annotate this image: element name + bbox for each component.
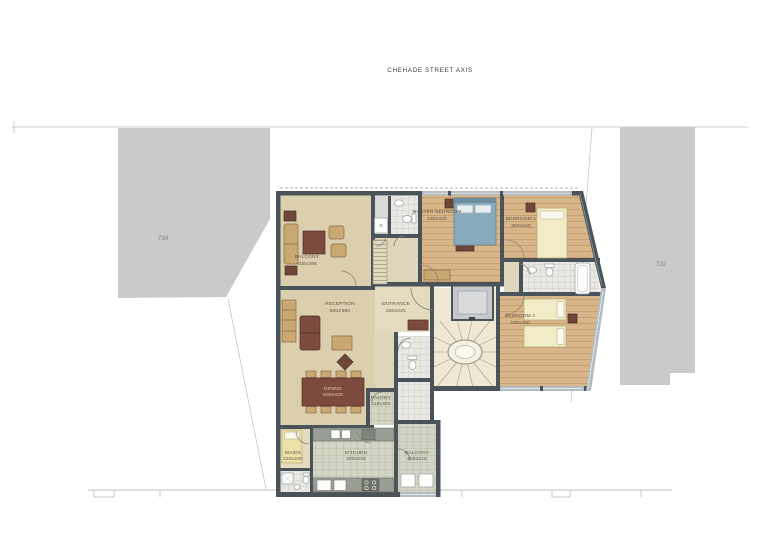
- stove: [362, 479, 379, 491]
- elevator-door-mark: [469, 317, 475, 320]
- kitchen-counter-top: [313, 428, 394, 441]
- toilet: [409, 361, 416, 370]
- sink: [402, 342, 411, 348]
- room-dims-bedroom1: 360x340: [511, 223, 531, 229]
- bedroom-hall-floor: [504, 262, 519, 292]
- boundary-marker: [94, 490, 114, 497]
- elevator-cab: [458, 291, 487, 314]
- neighbor-building-732: [620, 127, 695, 385]
- shower-pan: [375, 218, 388, 233]
- stairwell-inner: [455, 346, 475, 359]
- room-label-bedroom1: BEDROOM 1: [506, 216, 537, 222]
- toilet: [546, 268, 553, 276]
- room-dims-dining: 500x400: [323, 392, 343, 398]
- toilet: [303, 476, 309, 484]
- sink: [395, 200, 404, 206]
- room-dims-master-bedroom: 435x340: [427, 216, 447, 222]
- kitchen-sink: [331, 430, 340, 439]
- entrance-console: [408, 320, 428, 330]
- neighbor-building-734: [118, 128, 270, 298]
- room-dims-maids: 220x240: [283, 456, 303, 462]
- room-label-reception: RECEPTION: [325, 301, 355, 307]
- coffee-table: [332, 336, 352, 350]
- room-label-maids: MAIDS: [285, 450, 301, 456]
- room-label-master-bedroom: MASTER BEDROOM: [413, 209, 462, 215]
- room-dims-balcony-bottom: 400x210: [407, 456, 427, 462]
- appliance: [317, 480, 331, 491]
- room-label-kitchen: KITCHEN: [345, 450, 368, 456]
- plot-734-label: 734: [158, 235, 169, 242]
- floor-plan-drawing: CHEHADE STREET AXIS 734 732 BALCONY 400x…: [0, 0, 760, 537]
- room-dims-balcony-top: 400x395: [297, 261, 317, 267]
- street-axis-label: CHEHADE STREET AXIS: [387, 67, 473, 74]
- plot-732-label: 732: [656, 261, 667, 268]
- room-dims-bedroom2: 400x350: [510, 320, 530, 326]
- room-dims-reception: 500X380: [330, 308, 351, 314]
- shelf-unit: [282, 300, 296, 342]
- room-label-balcony-bottom: BALCONY: [405, 450, 430, 456]
- dining-table: [302, 378, 364, 406]
- laundry-floor: [398, 382, 430, 420]
- floor-plan-page: CHEHADE STREET AXIS 734 732 BALCONY 400x…: [0, 0, 760, 537]
- sink: [294, 485, 300, 490]
- corridor2-floor: [375, 332, 394, 388]
- corridor-closet: [373, 240, 387, 284]
- property-line-left: [228, 299, 266, 489]
- room-label-entrance: ENTRANCE: [382, 301, 410, 307]
- room-dims-kitchen: 400x240: [346, 456, 366, 462]
- room-dims-entrance: 280x225: [386, 308, 406, 314]
- room-label-pantry: PANTRY: [371, 395, 392, 401]
- appliance: [334, 480, 346, 491]
- boundary-marker: [552, 490, 570, 497]
- room-dims-pantry: 110x300: [371, 401, 391, 407]
- room-label-dining: DINING: [324, 386, 342, 392]
- toilet: [403, 216, 412, 223]
- room-label-balcony-top: BALCONY: [295, 254, 320, 260]
- room-label-bedroom2: BEDROOM 2: [505, 313, 536, 319]
